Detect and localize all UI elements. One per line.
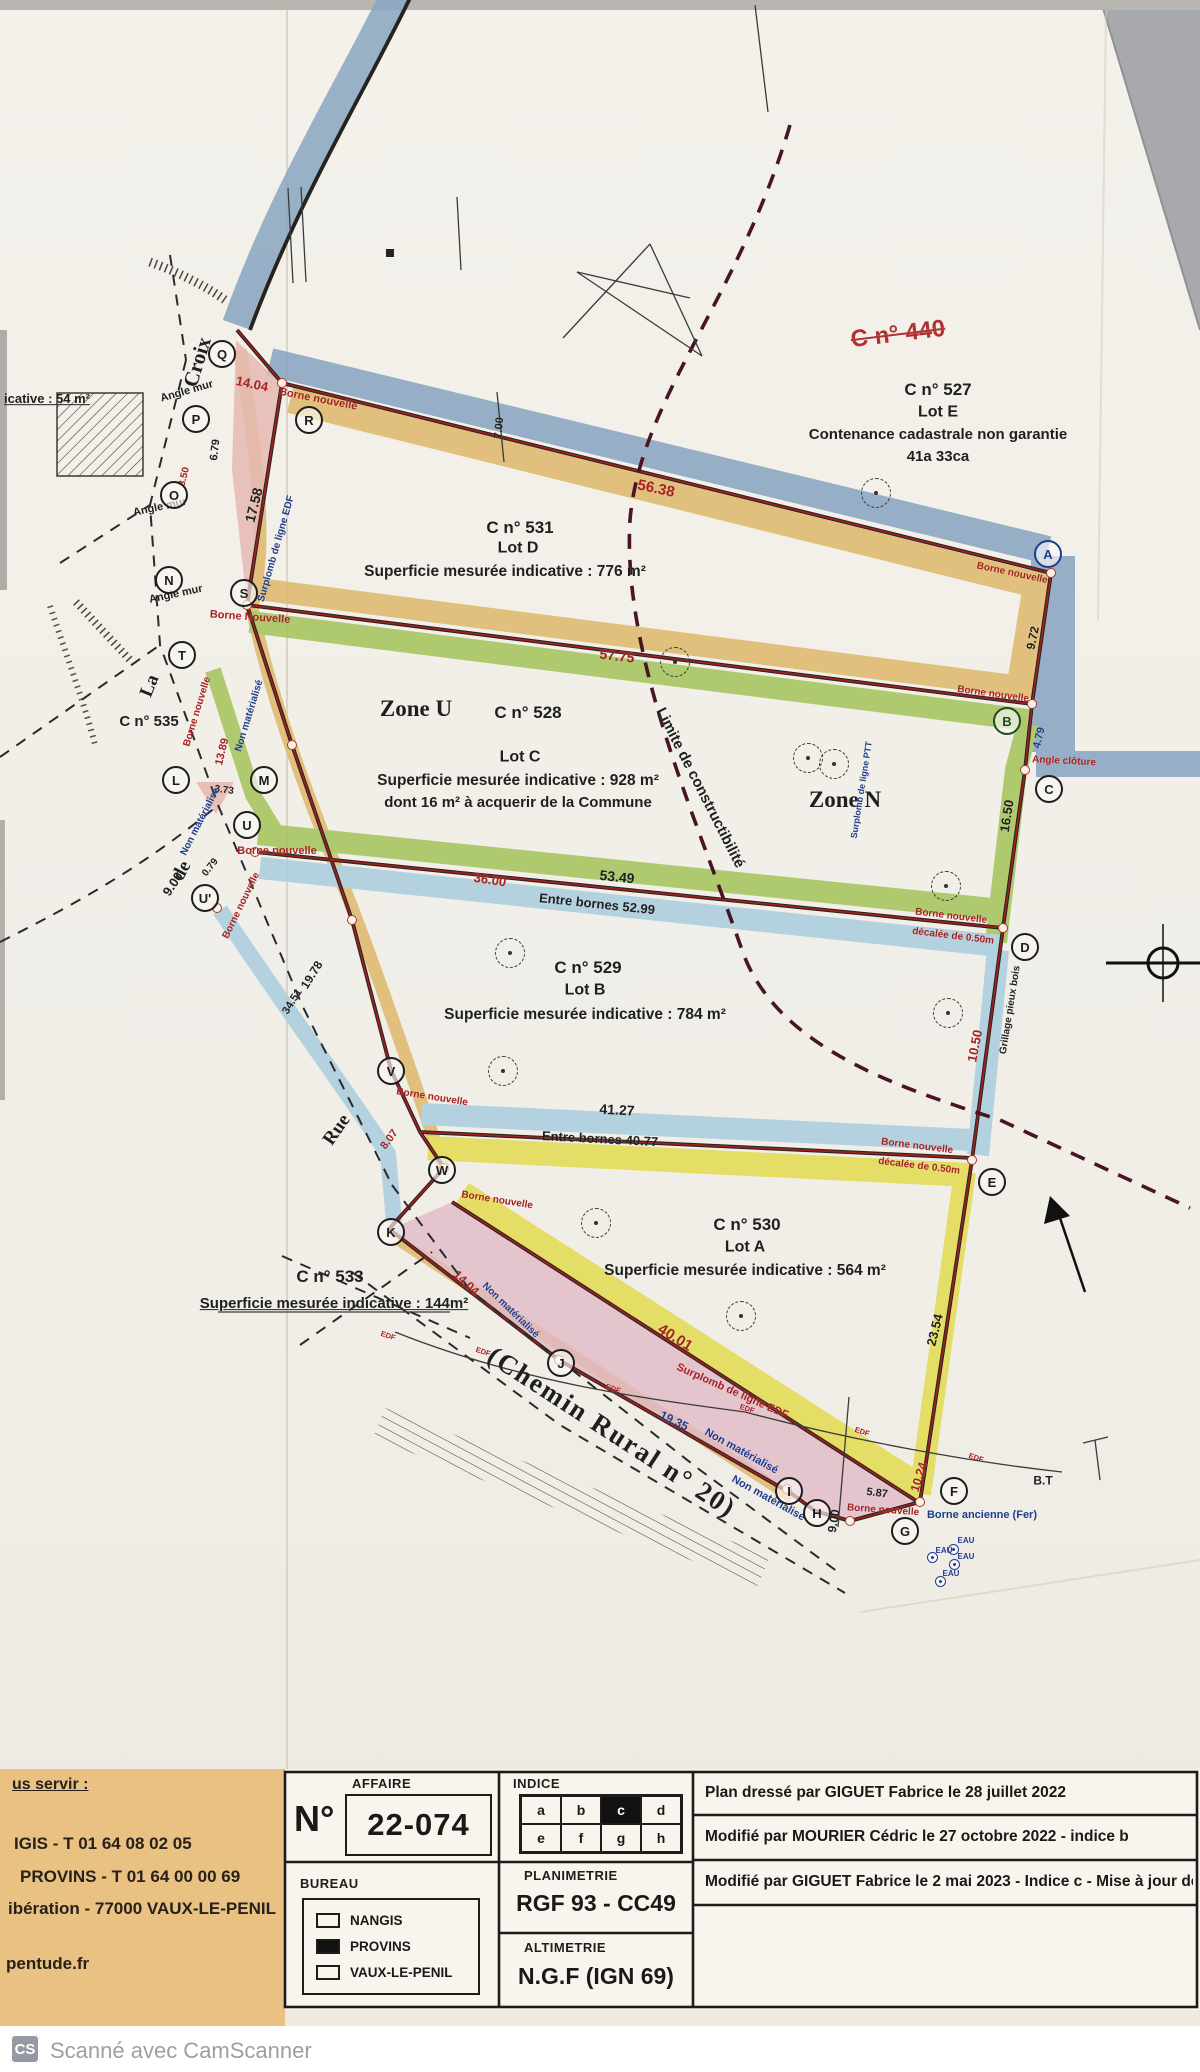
vertex-marker-a: A <box>1034 540 1062 568</box>
tree-symbol <box>861 478 891 508</box>
planimetrie-value: RGF 93 - CC49 <box>510 1890 682 1917</box>
vertex-marker-t: T <box>168 641 196 669</box>
vertex-marker-k: K <box>377 1218 405 1246</box>
eau-label: EAU <box>958 1537 975 1545</box>
lot-e-area: 41a 33ca <box>907 449 970 465</box>
vertex-marker-p: P <box>182 405 210 433</box>
tree-symbol <box>931 871 961 901</box>
vertex-marker-g: G <box>891 1517 919 1545</box>
lot-c-label: Lot C <box>500 750 541 767</box>
revision-row-2: Modifié par MOURIER Cédric le 27 octobre… <box>705 1828 1193 1846</box>
vertex-marker-s: S <box>230 579 258 607</box>
bureau-row-nangis: NANGIS <box>316 1913 478 1928</box>
tree-symbol <box>819 749 849 779</box>
borne-marker <box>998 923 1008 933</box>
vertex-marker-n: N <box>155 566 183 594</box>
tree-symbol <box>495 938 525 968</box>
parcel-533-label: C n° 533 <box>296 1268 363 1286</box>
indice-cell-f: f <box>561 1824 601 1852</box>
eau-label: EAU <box>943 1570 960 1578</box>
annotation-label: Borne nouvelle <box>237 846 316 858</box>
vertex-marker-d: D <box>1011 933 1039 961</box>
lot-b-area: Superficie mesurée indicative : 784 m² <box>444 1007 726 1023</box>
vertex-marker-l: L <box>162 766 190 794</box>
planimetrie-label: PLANIMETRIE <box>524 1868 618 1883</box>
parcel-530-label: C n° 530 <box>713 1216 780 1234</box>
parcel-527-label: C n° 527 <box>904 381 971 399</box>
vertex-marker-q: Q <box>208 340 236 368</box>
vertex-marker-w: W <box>428 1156 456 1184</box>
affaire-label: AFFAIRE <box>352 1776 411 1791</box>
small-building-mark <box>386 249 394 257</box>
map-drawing <box>0 0 1200 2072</box>
vertex-marker-j: J <box>547 1349 575 1377</box>
annotation-label: Borne ancienne (Fer) <box>927 1510 1037 1522</box>
vertex-marker-u: U <box>233 811 261 839</box>
lot-e-label: Lot E <box>918 405 958 422</box>
lot-b-label: Lot B <box>565 983 606 1000</box>
parcel-535-label: C n° 535 <box>119 714 178 730</box>
revision-row-1: Plan dressé par GIGUET Fabrice le 28 jui… <box>705 1784 1193 1802</box>
indice-grid: abcdefgh <box>519 1794 683 1854</box>
affaire-number: 22-074 <box>345 1794 492 1856</box>
numero-label: N° <box>294 1798 334 1840</box>
letterhead-line-3: ibération - 77000 VAUX-LE-PENIL <box>8 1899 276 1919</box>
lot-c-note: dont 16 m² à acquerir de la Commune <box>384 795 652 811</box>
measurement-label: 53.49 <box>599 868 635 886</box>
eau-label: EAU <box>936 1547 953 1555</box>
checkbox-empty-icon <box>316 1965 340 1980</box>
measurement-label: 41.27 <box>599 1102 635 1119</box>
bureau-row-vaux-le-penil: VAUX-LE-PENIL <box>316 1965 478 1980</box>
checkbox-empty-icon <box>316 1913 340 1928</box>
scanned-survey-plan: C n° 440C n° 527Lot EContenance cadastra… <box>0 0 1200 2072</box>
parcel-529-label: C n° 529 <box>554 959 621 977</box>
revision-row-3: Modifié par GIGUET Fabrice le 2 mai 2023… <box>705 1873 1193 1891</box>
vertex-marker-u-prime: U' <box>191 884 219 912</box>
letterhead-website: pentude.fr <box>6 1954 89 1974</box>
borne-marker <box>915 1497 925 1507</box>
borne-marker <box>347 915 357 925</box>
borne-marker <box>967 1155 977 1165</box>
bureau-name: PROVINS <box>350 1939 411 1954</box>
zone-u-label: Zone U <box>380 697 452 721</box>
vertex-marker-h: H <box>803 1499 831 1527</box>
indice-cell-a: a <box>521 1796 561 1824</box>
lot-d-label: Lot D <box>498 541 539 558</box>
tree-symbol <box>660 647 690 677</box>
annotation-label: B.T <box>1033 1475 1052 1488</box>
measurement-label: 7.00 <box>493 417 506 439</box>
vertex-marker-e: E <box>978 1168 1006 1196</box>
eau-label: EAU <box>958 1553 975 1561</box>
lot-c-area: Superficie mesurée indicative : 928 m² <box>377 773 659 789</box>
tree-symbol <box>488 1056 518 1086</box>
altimetrie-value: N.G.F (IGN 69) <box>510 1963 682 1990</box>
bureau-box: NANGISPROVINSVAUX-LE-PENIL <box>302 1898 480 1995</box>
bureau-label: BUREAU <box>300 1876 359 1891</box>
vertex-marker-f: F <box>940 1477 968 1505</box>
vertex-marker-b: B <box>993 707 1021 735</box>
parcel-533-area: Superficie mesurée indicative : 144m² <box>200 1296 468 1312</box>
vertex-marker-m: M <box>250 766 278 794</box>
tree-symbol <box>793 743 823 773</box>
indice-cell-e: e <box>521 1824 561 1852</box>
letterhead-servir: us servir : <box>12 1776 88 1794</box>
parcel-528-label: C n° 528 <box>494 704 561 722</box>
indice-cell-d: d <box>641 1796 681 1824</box>
lot-a-area: Superficie mesurée indicative : 564 m² <box>604 1263 886 1279</box>
borne-marker <box>845 1516 855 1526</box>
indice-cell-h: h <box>641 1824 681 1852</box>
indice-cell-c: c <box>601 1796 641 1824</box>
tree-symbol <box>581 1208 611 1238</box>
bureau-name: VAUX-LE-PENIL <box>350 1965 453 1980</box>
bureau-name: NANGIS <box>350 1913 403 1928</box>
vertex-marker-c: C <box>1035 775 1063 803</box>
parcel-54m2-area: icative : 54 m² <box>4 392 90 406</box>
camscanner-badge-icon: CS <box>10 2034 40 2064</box>
lot-a-label: Lot A <box>725 1240 765 1257</box>
letterhead-line-2: PROVINS - T 01 64 00 00 69 <box>20 1867 240 1887</box>
indice-cell-b: b <box>561 1796 601 1824</box>
camscanner-text: Scanné avec CamScanner <box>50 2038 312 2064</box>
borne-marker <box>1020 765 1030 775</box>
checkbox-checked-icon <box>316 1939 340 1954</box>
lot-e-note: Contenance cadastrale non garantie <box>809 427 1067 443</box>
vertex-marker-o: O <box>160 481 188 509</box>
zone-n-label: Zone N <box>809 788 881 812</box>
lot-d-area: Superficie mesurée indicative : 776 m² <box>364 564 646 580</box>
tree-symbol <box>933 998 963 1028</box>
tree-symbol <box>726 1301 756 1331</box>
vertex-marker-v: V <box>377 1057 405 1085</box>
parcel-531-label: C n° 531 <box>486 519 553 537</box>
vertex-marker-r: R <box>295 406 323 434</box>
measurement-label: 5.87 <box>866 1487 889 1501</box>
altimetrie-label: ALTIMETRIE <box>524 1940 606 1955</box>
letterhead-line-1: IGIS - T 01 64 08 02 05 <box>14 1834 192 1854</box>
indice-label: INDICE <box>513 1776 560 1791</box>
borne-marker <box>287 740 297 750</box>
indice-cell-g: g <box>601 1824 641 1852</box>
bureau-row-provins: PROVINS <box>316 1939 478 1954</box>
vertex-marker-i: I <box>775 1477 803 1505</box>
paper-background <box>0 0 1200 2072</box>
